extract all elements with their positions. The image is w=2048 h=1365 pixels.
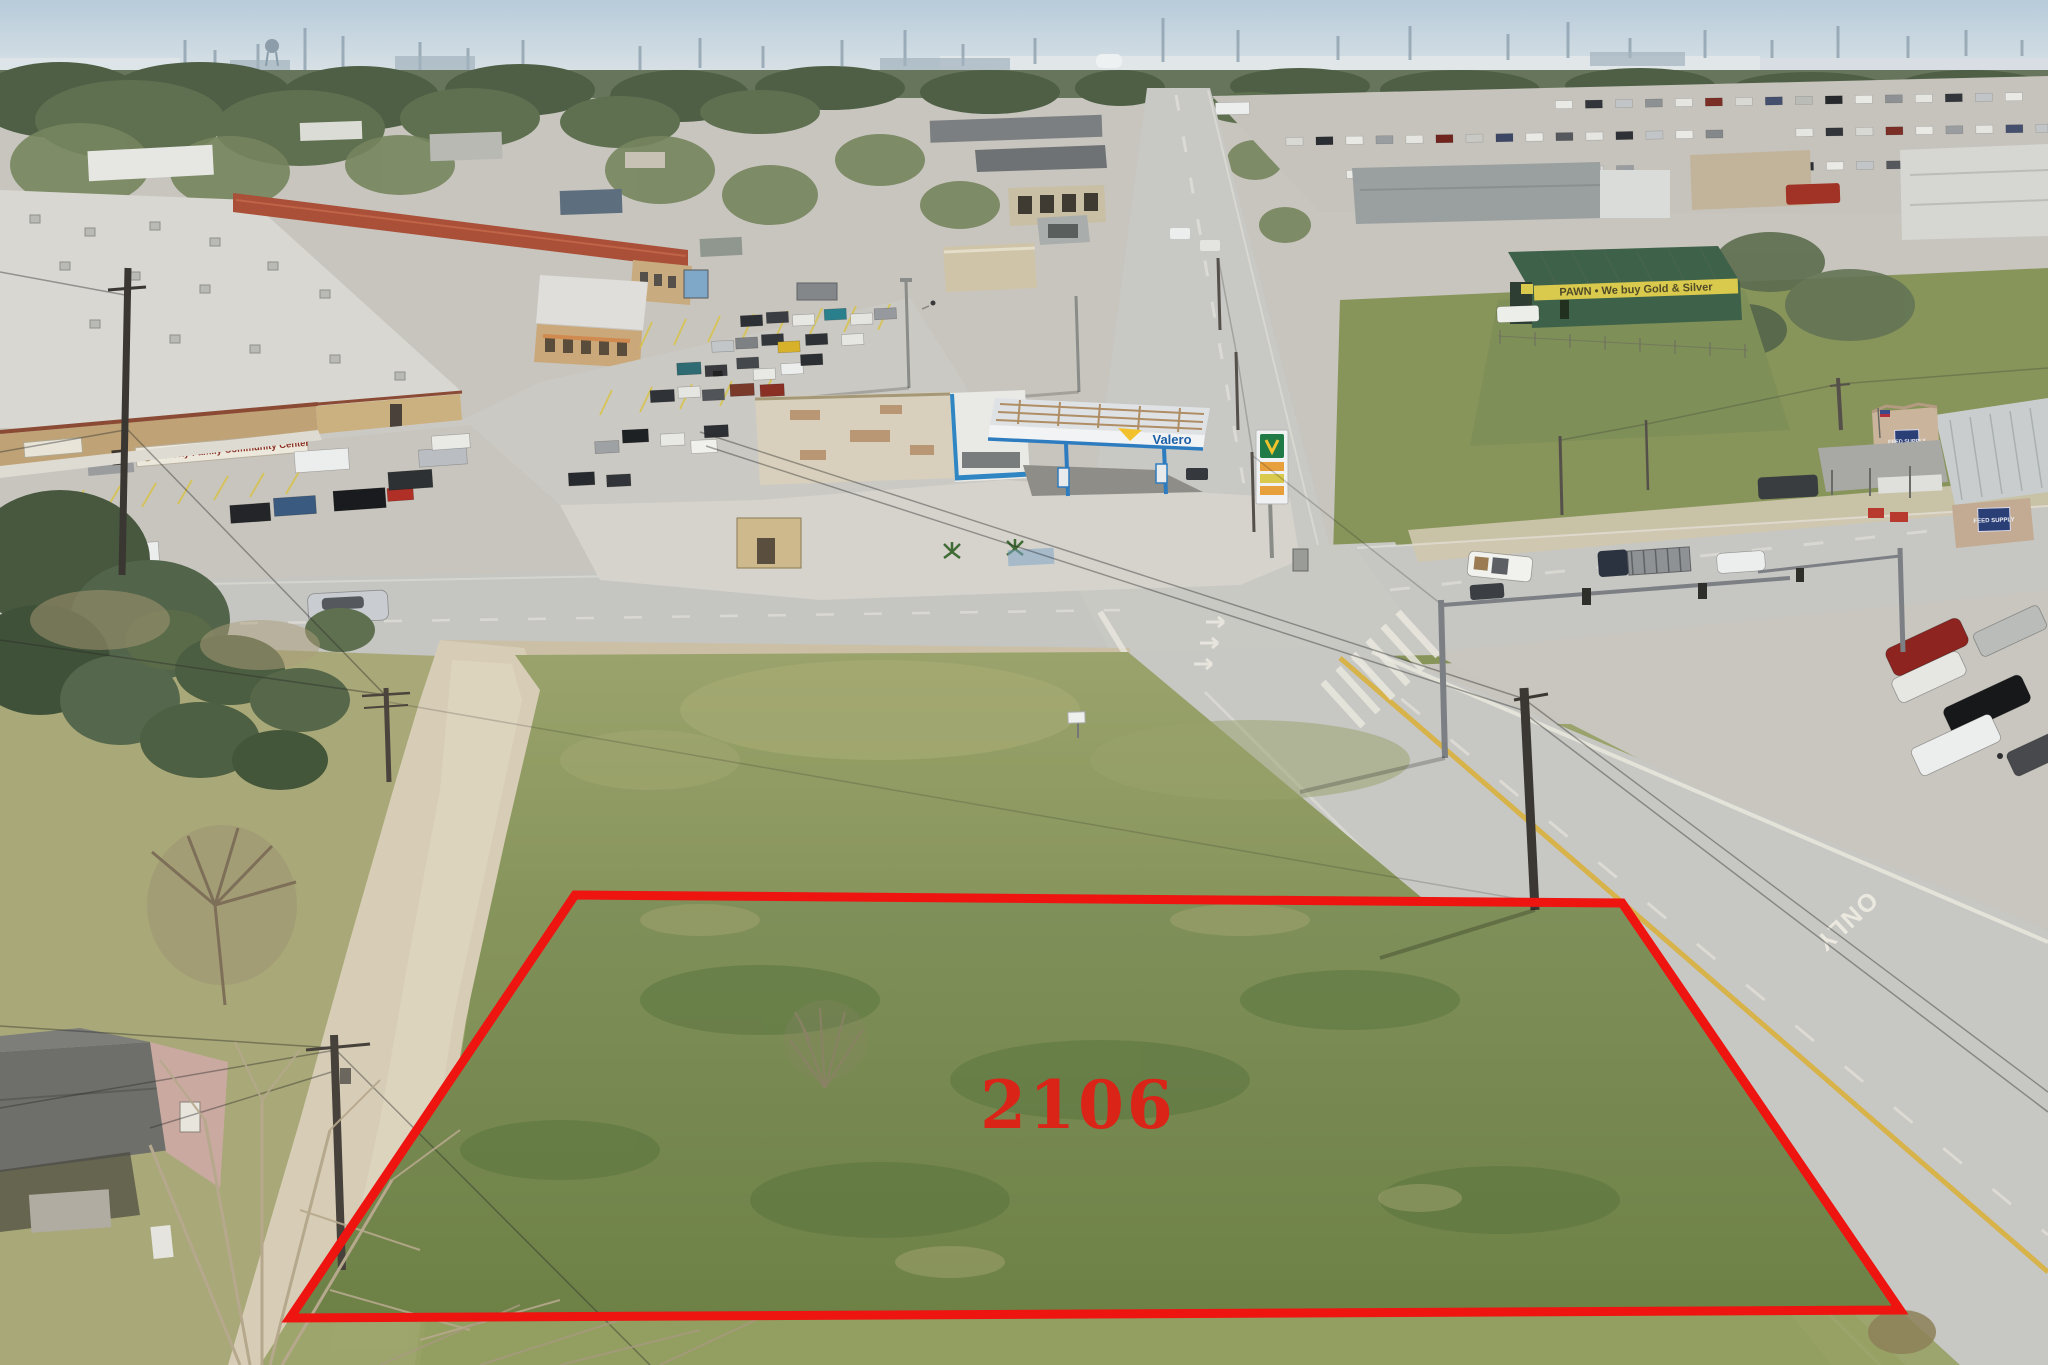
pedestrian [931, 301, 936, 306]
parked-suv [1757, 474, 1818, 499]
aerial-photo: ONLY Texas City Family Community Center [0, 0, 2048, 1365]
dumpster [797, 283, 837, 300]
signal-cabinet [1293, 549, 1308, 571]
pedestrian [1997, 753, 2003, 759]
dry-bush [1868, 1310, 1936, 1354]
white-pickup [1497, 305, 1540, 322]
valero-canopy-logo: Valero [1152, 432, 1191, 447]
feed-sign-side: FEED SUPPLY [1973, 507, 2014, 531]
lot-number-label: 2106 [980, 1066, 1176, 1144]
red-pickup-truck [1786, 183, 1841, 205]
